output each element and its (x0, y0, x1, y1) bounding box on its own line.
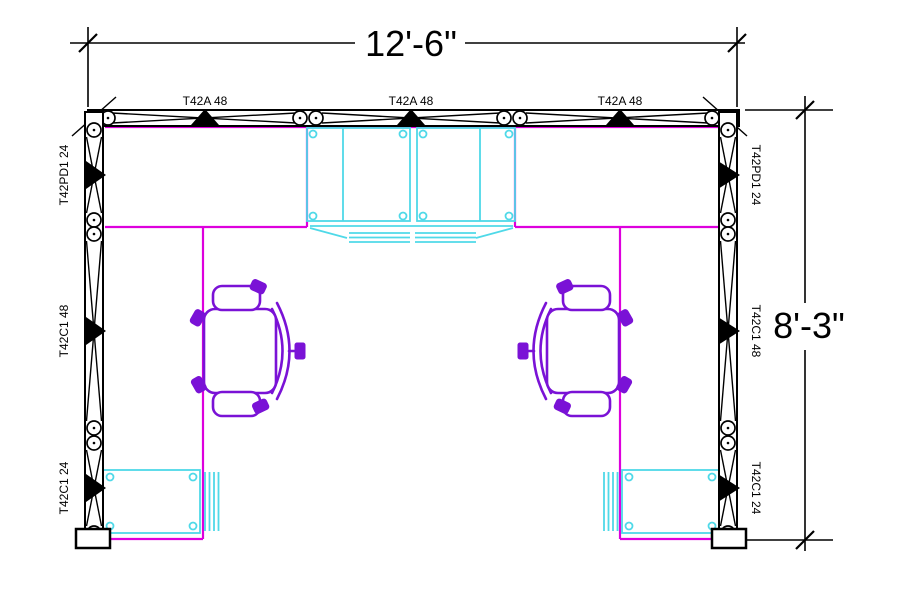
floor-plan: 12'-6" 8'-3" (0, 0, 904, 614)
panel-label-left-1: T42PD1 24 (57, 144, 71, 205)
panel-foot-left (76, 529, 110, 548)
panel-label-right-1: T42PD1 24 (749, 145, 763, 206)
panel-label-left-3: T42C1 24 (57, 461, 71, 514)
panel-run-right: T42PD1 24 T42C1 48 T42C1 24 (712, 112, 763, 548)
dimension-width-text: 12'-6" (365, 23, 457, 64)
panel-label-top-2: T42A 48 (389, 94, 434, 108)
panel-label-top-3: T42A 48 (598, 94, 643, 108)
chair-knob (295, 343, 305, 359)
panel-label-left-2: T42C1 48 (57, 304, 71, 357)
panel-label-right-3: T42C1 24 (749, 462, 763, 515)
panel-foot-right (712, 529, 746, 548)
panel-label-right-2: T42C1 48 (749, 305, 763, 358)
background (0, 0, 904, 614)
floor-plan-svg: 12'-6" 8'-3" (0, 0, 904, 614)
panel-label-top-1: T42A 48 (183, 94, 228, 108)
dimension-height-text: 8'-3" (773, 305, 845, 346)
